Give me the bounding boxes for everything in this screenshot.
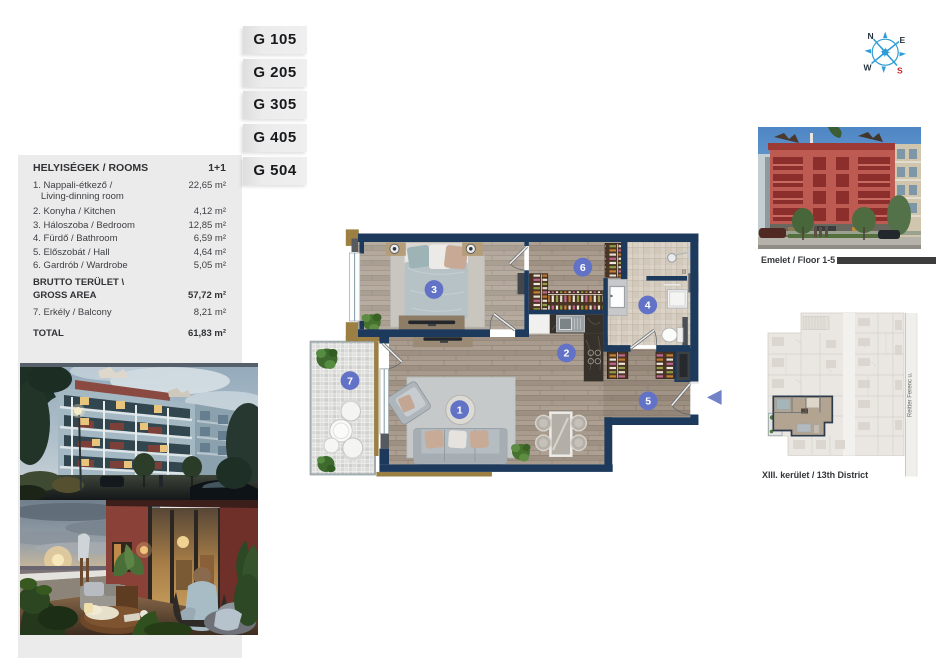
svg-text:3: 3 xyxy=(431,284,437,296)
svg-text:4: 4 xyxy=(645,300,651,312)
svg-text:5: 5 xyxy=(645,396,651,408)
svg-text:E: E xyxy=(900,35,906,45)
svg-text:W: W xyxy=(864,63,873,73)
svg-text:S: S xyxy=(897,66,903,76)
svg-text:1: 1 xyxy=(457,404,463,416)
svg-text:7: 7 xyxy=(347,375,353,387)
svg-text:6: 6 xyxy=(580,262,586,274)
svg-text:N: N xyxy=(868,31,874,41)
svg-text:2: 2 xyxy=(563,348,569,360)
svg-text:Reitter Ferenc u.: Reitter Ferenc u. xyxy=(908,372,914,417)
